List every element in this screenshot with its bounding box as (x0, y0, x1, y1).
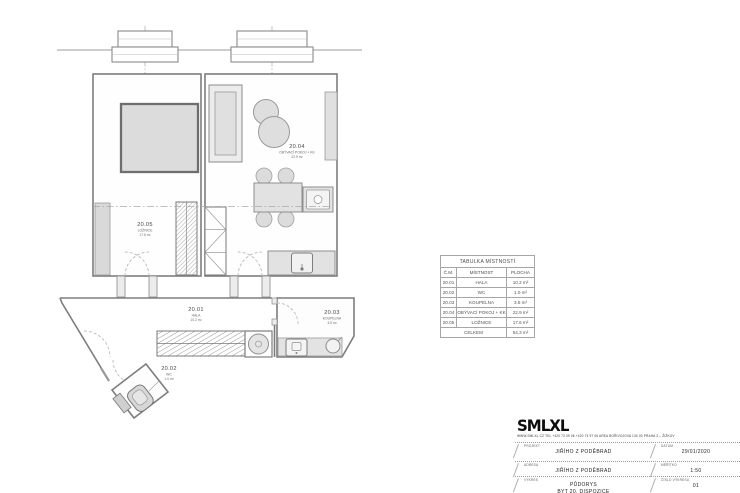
table-row: 20.04OBÝVACÍ POKOJ + KK22.9 m² (441, 308, 535, 318)
svg-text:WC: WC (166, 373, 172, 377)
room-living (205, 74, 337, 276)
field-address: ADRESA JIŘÍHO Z PODĚBRAD (515, 462, 652, 477)
radiator (95, 203, 110, 275)
svg-text:10.2 m²: 10.2 m² (190, 318, 202, 322)
title-block: SMLXL WWW.SMLXL.CZ TEL +420 73 09 06 +42… (513, 419, 740, 493)
facade-datum-line (57, 26, 362, 77)
table-total-row: CELKEM 54.3 m² (441, 328, 535, 338)
svg-text:OBÝVACÍ POKOJ + KK: OBÝVACÍ POKOJ + KK (279, 151, 315, 155)
svg-text:20.04: 20.04 (289, 144, 305, 150)
room-area-table: TABULKA MÍSTNOSTÍ Č.M. MÍSTNOST PLOCHA 2… (440, 255, 535, 338)
room-wc (112, 364, 168, 418)
table-row: 20.05LOŽNICE17.6 m² (441, 318, 535, 328)
stove-unit (303, 187, 333, 212)
col-header-id: Č.M. (441, 268, 457, 278)
svg-text:20.01: 20.01 (188, 307, 204, 313)
window-left (112, 31, 178, 62)
window-right (231, 31, 313, 62)
drawing-sheet: 20.05 LOŽNICE 17.6 m² 20.04 OBÝVACÍ POKO… (0, 0, 740, 493)
table-header-row: Č.M. MÍSTNOST PLOCHA (441, 268, 535, 278)
svg-text:3.5 m²: 3.5 m² (327, 321, 337, 325)
svg-text:22.9 m²: 22.9 m² (291, 155, 303, 159)
svg-text:1.0 m²: 1.0 m² (164, 377, 174, 381)
smlxl-logo: SMLXL (513, 419, 740, 433)
table-row: 20.03KOUPELNA3.5 m² (441, 298, 535, 308)
hall-cabinet-hatched (157, 331, 245, 356)
col-header-room: MÍSTNOST (457, 268, 507, 278)
bed (121, 104, 198, 172)
svg-text:20.05: 20.05 (137, 222, 153, 228)
titleblock-row-drawing: VÝKRES PŮDORYS BYT 20, DISPOZICE ČÍSLO V… (515, 476, 740, 493)
shelf (325, 92, 337, 160)
table-row: 20.01HALA10.2 m² (441, 278, 535, 288)
kitchen-counter (268, 251, 335, 275)
svg-text:20.02: 20.02 (161, 366, 177, 372)
room-bathroom (272, 298, 354, 357)
svg-text:20.03: 20.03 (324, 310, 340, 316)
svg-text:17.6 m²: 17.6 m² (139, 233, 151, 237)
svg-text:KOUPELNA: KOUPELNA (323, 317, 342, 321)
col-header-area: PLOCHA (507, 268, 535, 278)
field-scale: MĚŘÍTKO 1:50 (652, 462, 740, 477)
washing-machine (245, 331, 272, 357)
table-title: TABULKA MÍSTNOSTÍ (441, 256, 535, 268)
room-bedroom (93, 74, 201, 276)
dining-table (254, 183, 302, 212)
label-wc: 20.02 WC 1.0 m² (161, 366, 177, 381)
cabinet-column (205, 207, 226, 275)
titleblock-row-project: PROJEKT JIŘÍHO Z PODĚBRAD DATUM 29/01/20… (515, 442, 740, 462)
field-project: PROJEKT JIŘÍHO Z PODĚBRAD (515, 443, 652, 462)
field-date: DATUM 29/01/2020 (652, 443, 740, 462)
coffee-table (259, 117, 290, 148)
total-label: CELKEM (441, 328, 507, 338)
label-hall: 20.01 HALA 10.2 m² (188, 307, 204, 322)
entry-door (101, 368, 109, 381)
total-value: 54.3 m² (507, 328, 535, 338)
field-drawing: VÝKRES PŮDORYS BYT 20, DISPOZICE (515, 477, 652, 493)
svg-text:LOŽNICE: LOŽNICE (138, 228, 153, 233)
titleblock-row-address: ADRESA JIŘÍHO Z PODĚBRAD MĚŘÍTKO 1:50 (515, 461, 740, 477)
washbasin (286, 339, 307, 356)
svg-text:HALA: HALA (192, 314, 202, 318)
field-drawing-number: ČÍSLO VÝKRESU 01 (652, 477, 740, 493)
table-row: 20.02WC1.0 m² (441, 288, 535, 298)
